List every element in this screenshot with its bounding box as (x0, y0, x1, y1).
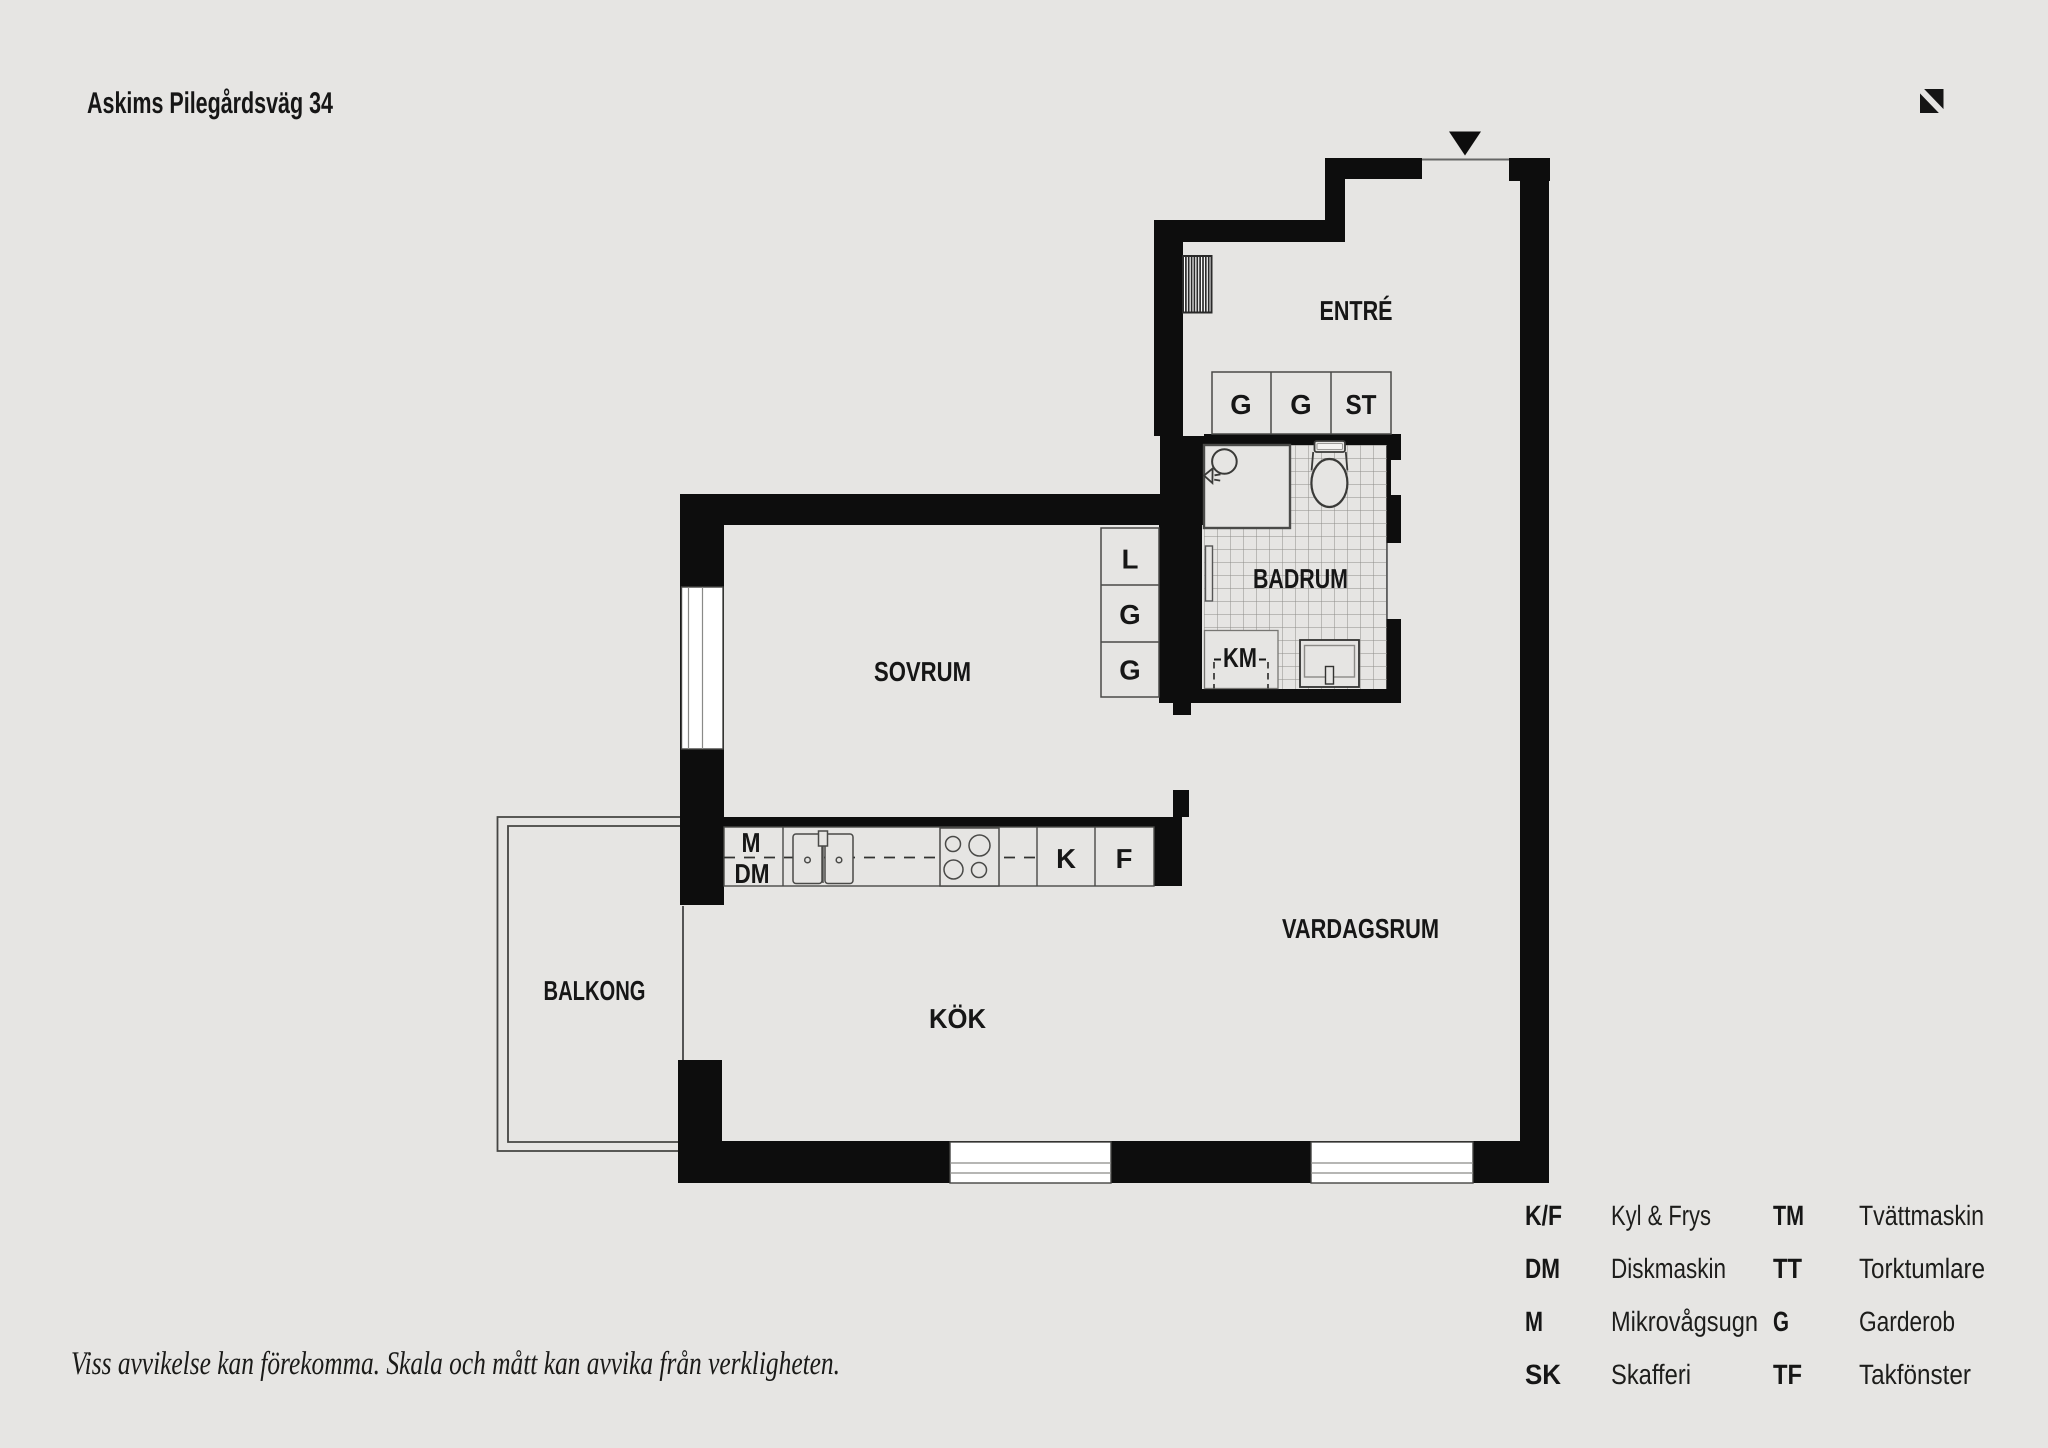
svg-text:Tvättmaskin: Tvättmaskin (1859, 1200, 1984, 1231)
svg-text:M: M (1525, 1306, 1543, 1337)
svg-text:Askims Pilegårdsväg 34: Askims Pilegårdsväg 34 (87, 87, 333, 120)
svg-text:BALKONG: BALKONG (544, 975, 646, 1006)
svg-text:G: G (1773, 1306, 1789, 1337)
svg-text:KM: KM (1223, 642, 1257, 673)
svg-text:Skafferi: Skafferi (1611, 1359, 1691, 1390)
svg-text:Torktumlare: Torktumlare (1859, 1253, 1985, 1284)
svg-text:SK: SK (1525, 1359, 1561, 1390)
svg-text:M: M (742, 827, 761, 858)
svg-text:G: G (1230, 389, 1251, 420)
svg-text:ST: ST (1346, 389, 1377, 420)
svg-text:TF: TF (1773, 1359, 1802, 1390)
svg-text:BADRUM: BADRUM (1253, 563, 1348, 594)
svg-text:VARDAGSRUM: VARDAGSRUM (1282, 913, 1439, 944)
svg-text:SOVRUM: SOVRUM (874, 656, 971, 687)
svg-text:Viss avvikelse kan förekomma.: Viss avvikelse kan förekomma. Skala och … (71, 1346, 840, 1382)
svg-text:DM: DM (1525, 1253, 1560, 1284)
svg-text:TT: TT (1773, 1253, 1802, 1284)
svg-text:Garderob: Garderob (1859, 1306, 1955, 1337)
svg-text:G: G (1290, 389, 1311, 420)
svg-text:K/F: K/F (1525, 1200, 1562, 1231)
svg-text:K: K (1056, 843, 1076, 874)
svg-text:L: L (1122, 544, 1139, 575)
svg-text:ENTRÉ: ENTRÉ (1320, 295, 1393, 326)
svg-text:Takfönster: Takfönster (1859, 1359, 1971, 1390)
svg-text:G: G (1119, 655, 1140, 686)
svg-text:G: G (1119, 599, 1140, 630)
svg-text:Mikrovågsugn: Mikrovågsugn (1611, 1306, 1758, 1337)
svg-text:DM: DM (735, 858, 770, 889)
svg-text:KÖK: KÖK (929, 1003, 986, 1034)
svg-text:Kyl & Frys: Kyl & Frys (1611, 1200, 1711, 1231)
svg-text:Diskmaskin: Diskmaskin (1611, 1253, 1726, 1284)
svg-text:F: F (1116, 843, 1133, 874)
svg-text:TM: TM (1773, 1200, 1804, 1231)
